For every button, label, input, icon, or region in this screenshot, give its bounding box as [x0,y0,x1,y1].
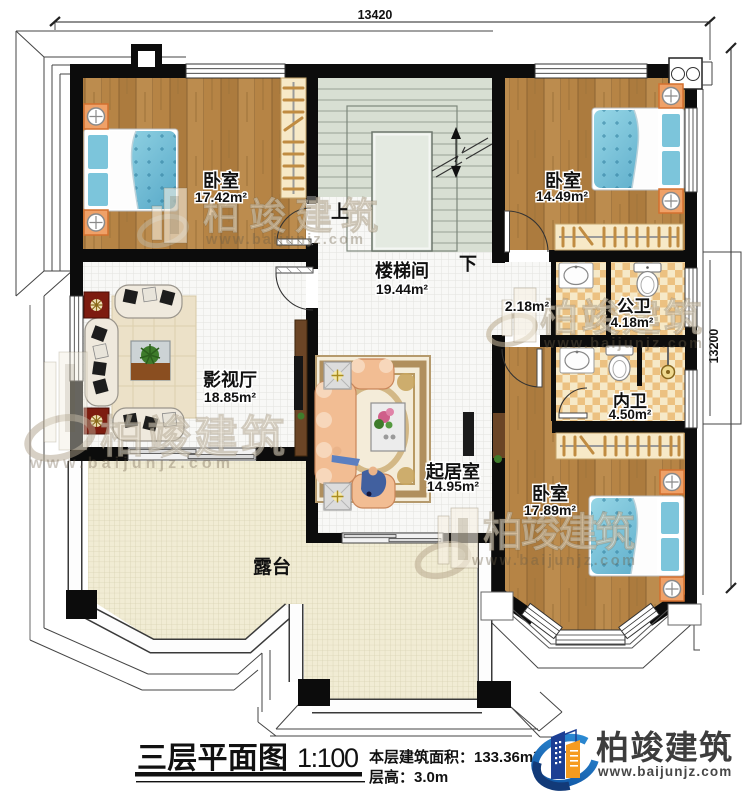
svg-text:14.95m²: 14.95m² [427,478,479,494]
svg-text:下: 下 [459,254,477,274]
svg-text:卧室: 卧室 [532,483,568,504]
svg-text:柏竣建筑: 柏竣建筑 [596,729,732,766]
svg-text:www.baijunjz.com: www.baijunjz.com [597,764,732,779]
svg-text:17.42m²: 17.42m² [195,189,247,205]
svg-text:层高：3.0m: 层高：3.0m [369,768,448,786]
svg-text:1:100: 1:100 [297,743,359,773]
svg-text:本层建筑面积：133.36m²: 本层建筑面积：133.36m² [369,748,538,766]
svg-text:露台: 露台 [253,555,291,578]
svg-text:上: 上 [331,202,349,222]
svg-text:13200: 13200 [707,329,721,364]
svg-text:13420: 13420 [358,8,393,22]
svg-text:影视厅: 影视厅 [203,369,257,390]
svg-text:4.18m²: 4.18m² [611,315,654,330]
svg-text:公卫: 公卫 [617,297,651,316]
svg-text:19.44m²: 19.44m² [376,281,428,297]
svg-text:4.50m²: 4.50m² [609,407,652,422]
svg-text:17.89m²: 17.89m² [524,502,576,518]
svg-text:楼梯间: 楼梯间 [375,260,429,281]
svg-text:2.18m²: 2.18m² [505,298,550,314]
svg-text:18.85m²: 18.85m² [204,389,256,405]
svg-text:卧室: 卧室 [203,170,239,191]
svg-text:14.49m²: 14.49m² [536,188,588,204]
svg-text:三层平面图: 三层平面图 [137,742,288,775]
